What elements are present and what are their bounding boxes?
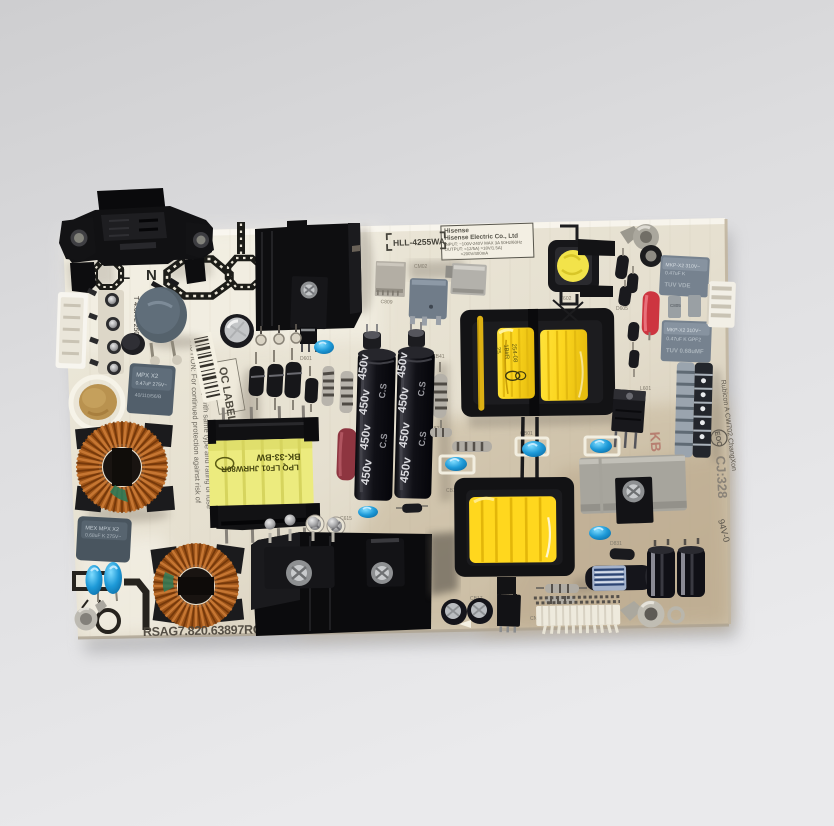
svg-text:D831: D831 — [610, 541, 622, 547]
svg-text:C809: C809 — [380, 299, 392, 305]
svg-text:N: N — [146, 267, 157, 284]
svg-text:KB: KB — [647, 431, 664, 452]
svg-text:0.47uF K: 0.47uF K — [665, 270, 686, 277]
svg-text:D601: D601 — [300, 356, 312, 362]
svg-text:RSAG7.820.63897ROH: RSAG7.820.63897ROH — [143, 622, 272, 639]
svg-text:C805: C805 — [670, 303, 681, 308]
svg-text:C.S: C.S — [377, 383, 389, 399]
svg-text:C.S: C.S — [378, 433, 390, 449]
svg-text:=200V/400mA: =200V/400mA — [461, 251, 489, 257]
svg-text:HLL-4255WA: HLL-4255WA — [393, 236, 445, 248]
svg-text:BK-33-BW: BK-33-BW — [256, 452, 301, 463]
svg-text:C.S: C.S — [417, 431, 429, 447]
svg-text:MKP-X2 310V~: MKP-X2 310V~ — [667, 327, 702, 334]
svg-text:D605: D605 — [616, 306, 628, 312]
svg-text:C.S: C.S — [416, 381, 428, 397]
svg-text:25: 25 — [494, 347, 501, 355]
svg-text:0.47uF K GPF2: 0.47uF K GPF2 — [666, 336, 701, 343]
